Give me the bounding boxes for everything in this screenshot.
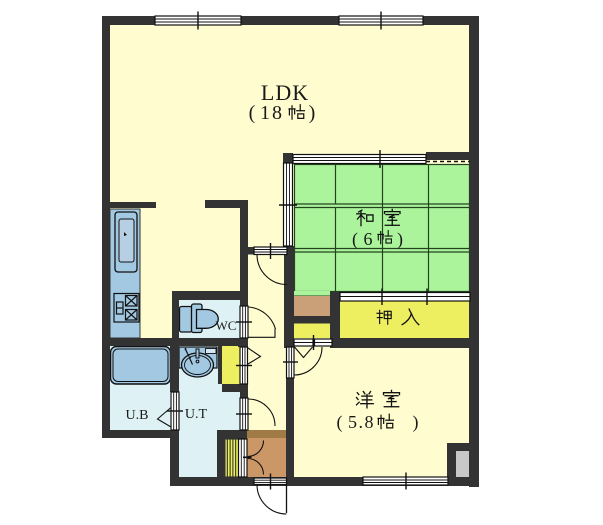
svg-text:WC: WC bbox=[216, 318, 237, 333]
svg-text:5.8: 5.8 bbox=[348, 412, 375, 432]
svg-text:U.T: U.T bbox=[185, 407, 208, 422]
svg-text:U.B: U.B bbox=[126, 408, 149, 423]
svg-text:(: ( bbox=[337, 412, 343, 433]
svg-text:(: ( bbox=[249, 102, 256, 124]
svg-text:): ) bbox=[413, 412, 419, 433]
svg-text:): ) bbox=[309, 102, 316, 124]
svg-text:6: 6 bbox=[364, 229, 373, 249]
svg-text:18: 18 bbox=[260, 102, 284, 124]
svg-text:(: ( bbox=[352, 229, 358, 250]
svg-text:): ) bbox=[397, 229, 403, 250]
